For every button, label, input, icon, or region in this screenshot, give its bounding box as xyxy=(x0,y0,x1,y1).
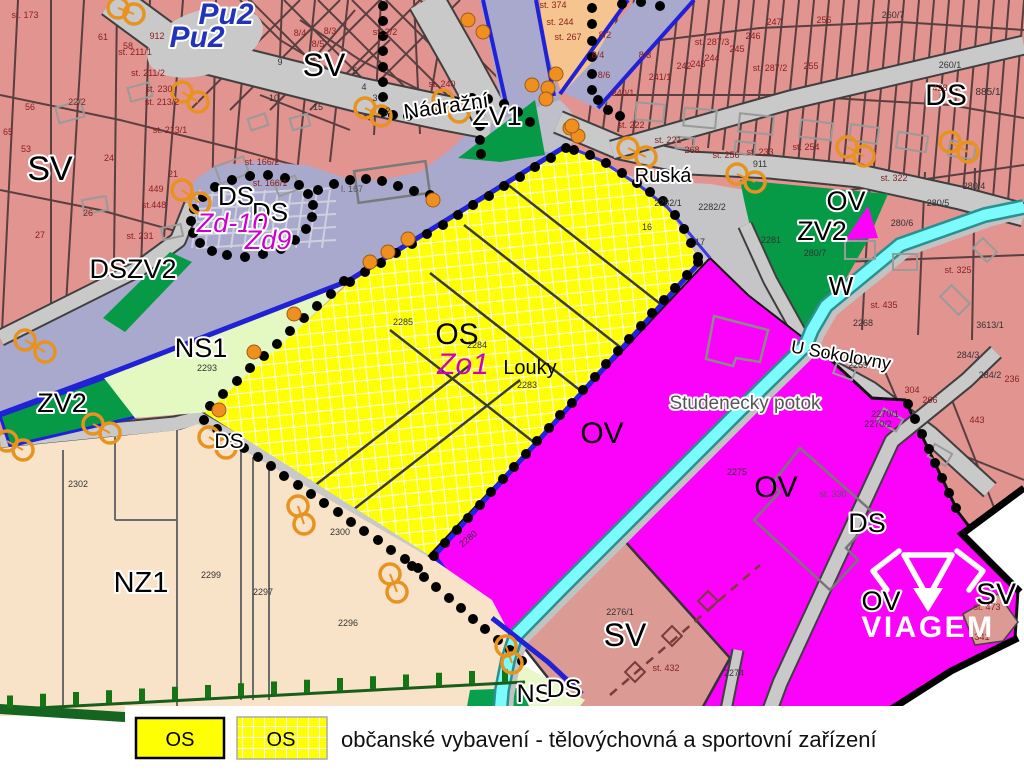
svg-text:8/2: 8/2 xyxy=(599,30,612,40)
svg-text:56: 56 xyxy=(25,102,35,112)
svg-text:21: 21 xyxy=(168,169,178,179)
svg-text:15: 15 xyxy=(313,102,323,112)
svg-text:st. 2/2: st. 2/2 xyxy=(373,27,398,37)
svg-text:st. 211/1: st. 211/1 xyxy=(118,47,152,57)
svg-text:304: 304 xyxy=(904,385,919,395)
svg-text:Zd9: Zd9 xyxy=(244,225,292,255)
svg-text:2299: 2299 xyxy=(201,570,221,580)
svg-text:2: 2 xyxy=(385,106,390,116)
svg-text:247: 247 xyxy=(766,17,781,27)
svg-text:243: 243 xyxy=(690,59,705,69)
svg-text:4: 4 xyxy=(361,82,366,92)
svg-text:65: 65 xyxy=(3,127,13,137)
svg-text:2270/1: 2270/1 xyxy=(871,409,899,419)
svg-text:242: 242 xyxy=(676,61,691,71)
svg-text:OV: OV xyxy=(580,417,623,450)
svg-text:8/3: 8/3 xyxy=(324,26,337,36)
svg-text:246: 246 xyxy=(745,31,760,41)
svg-text:2269: 2269 xyxy=(848,360,868,370)
svg-text:24: 24 xyxy=(104,153,114,163)
svg-text:26: 26 xyxy=(83,208,93,218)
svg-text:OV: OV xyxy=(754,471,797,504)
svg-text:l. 167: l. 167 xyxy=(341,184,363,194)
svg-text:443: 443 xyxy=(969,415,984,425)
svg-text:st. 256: st. 256 xyxy=(712,150,739,160)
svg-text:st.448: st.448 xyxy=(142,200,167,210)
svg-text:st. 230: st. 230 xyxy=(145,84,172,94)
svg-text:DSZV2: DSZV2 xyxy=(89,254,176,284)
svg-text:284/2: 284/2 xyxy=(979,370,1002,380)
svg-text:241/1: 241/1 xyxy=(649,72,672,82)
svg-text:911: 911 xyxy=(753,159,767,169)
svg-text:2282/2: 2282/2 xyxy=(698,202,726,212)
svg-text:280/7: 280/7 xyxy=(804,248,827,258)
svg-text:61: 61 xyxy=(98,32,108,42)
svg-text:DS: DS xyxy=(848,508,886,538)
svg-text:280/5: 280/5 xyxy=(927,198,950,208)
svg-text:st. 211/2: st. 211/2 xyxy=(131,68,165,78)
svg-text:9: 9 xyxy=(277,57,282,67)
svg-text:st. 287/2: st. 287/2 xyxy=(753,63,788,73)
svg-text:260/7: 260/7 xyxy=(882,10,905,20)
svg-text:284/3: 284/3 xyxy=(957,350,980,360)
svg-text:2276/1: 2276/1 xyxy=(606,607,634,617)
svg-text:2274: 2274 xyxy=(724,668,744,678)
svg-text:280/6: 280/6 xyxy=(891,218,914,228)
svg-text:st. 240: st. 240 xyxy=(428,79,455,89)
svg-text:5: 5 xyxy=(352,66,357,76)
svg-text:st. 435: st. 435 xyxy=(870,300,897,310)
svg-text:st. 325: st. 325 xyxy=(944,265,971,275)
svg-text:Louky: Louky xyxy=(503,357,556,379)
svg-text:st. 330: st. 330 xyxy=(819,489,846,499)
svg-text:260/1: 260/1 xyxy=(939,60,962,70)
svg-text:SV: SV xyxy=(27,150,73,188)
svg-text:ZV2: ZV2 xyxy=(797,216,847,246)
svg-text:občanské vybavení - tělovýchov: občanské vybavení - tělovýchovná a sport… xyxy=(341,727,877,752)
svg-text:2284: 2284 xyxy=(467,340,487,350)
svg-text:10: 10 xyxy=(269,93,279,103)
svg-text:240/1: 240/1 xyxy=(612,88,635,98)
svg-text:W: W xyxy=(829,271,854,301)
svg-text:st. 267: st. 267 xyxy=(554,32,581,42)
svg-text:2281: 2281 xyxy=(761,235,781,245)
svg-text:8/4: 8/4 xyxy=(294,28,307,38)
svg-text:DS: DS xyxy=(218,181,254,211)
svg-text:st. 231: st. 231 xyxy=(126,231,153,241)
svg-text:OS: OS xyxy=(166,729,195,751)
svg-text:2275: 2275 xyxy=(727,467,747,477)
svg-text:885/1: 885/1 xyxy=(975,87,1000,98)
svg-text:SV: SV xyxy=(604,617,647,653)
svg-text:DS: DS xyxy=(547,675,582,703)
svg-text:8/4: 8/4 xyxy=(592,50,605,60)
svg-text:OV: OV xyxy=(826,186,865,216)
svg-text:912: 912 xyxy=(149,31,164,41)
svg-text:256: 256 xyxy=(816,15,831,25)
svg-text:266: 266 xyxy=(922,395,937,405)
svg-text:280/4: 280/4 xyxy=(963,181,986,191)
svg-text:53: 53 xyxy=(21,144,31,154)
svg-text:22/2: 22/2 xyxy=(68,97,86,107)
svg-text:428: 428 xyxy=(932,83,947,93)
svg-text:Studenecky potok: Studenecky potok xyxy=(669,393,821,414)
svg-text:2297: 2297 xyxy=(253,587,273,597)
svg-text:2283: 2283 xyxy=(517,380,537,390)
svg-text:Zo1: Zo1 xyxy=(436,348,489,381)
svg-text:st. 221: st. 221 xyxy=(654,135,681,145)
svg-text:st. 287/3: st. 287/3 xyxy=(695,37,730,47)
svg-text:2302: 2302 xyxy=(68,479,88,489)
svg-text:2300: 2300 xyxy=(330,527,350,537)
svg-text:2282/1: 2282/1 xyxy=(654,198,682,208)
svg-text:8/5: 8/5 xyxy=(312,39,325,49)
svg-text:st. 322: st. 322 xyxy=(880,173,907,183)
svg-text:st. 222: st. 222 xyxy=(617,120,644,130)
svg-text:st. 374: st. 374 xyxy=(539,0,566,10)
svg-text:st. 432: st. 432 xyxy=(652,663,679,673)
svg-text:2268: 2268 xyxy=(853,318,873,328)
svg-text:244: 244 xyxy=(704,53,719,63)
svg-text:27: 27 xyxy=(35,230,45,240)
svg-text:st. 166/1: st. 166/1 xyxy=(253,178,288,188)
svg-text:st. 173: st. 173 xyxy=(11,10,38,20)
svg-text:449: 449 xyxy=(148,184,163,194)
svg-text:SV: SV xyxy=(303,47,346,83)
svg-text:st. 213/1: st. 213/1 xyxy=(153,125,188,135)
svg-text:3613/1: 3613/1 xyxy=(976,320,1004,330)
svg-text:NZ1: NZ1 xyxy=(114,567,169,599)
svg-text:8/6: 8/6 xyxy=(598,70,611,80)
svg-text:st. 233: st. 233 xyxy=(746,147,773,157)
svg-text:2293: 2293 xyxy=(197,363,217,373)
svg-text:st. 254: st. 254 xyxy=(792,142,819,152)
svg-text:2285: 2285 xyxy=(393,317,413,327)
svg-text:245: 245 xyxy=(729,44,744,54)
svg-text:VIAGEM: VIAGEM xyxy=(861,611,994,644)
svg-text:17: 17 xyxy=(695,237,705,247)
svg-text:268: 268 xyxy=(684,145,699,155)
svg-text:ZV2: ZV2 xyxy=(37,388,87,418)
svg-text:255: 255 xyxy=(803,61,818,71)
svg-text:OS: OS xyxy=(267,729,296,751)
svg-text:8/3: 8/3 xyxy=(639,50,652,60)
svg-text:st. 166/2: st. 166/2 xyxy=(245,157,280,167)
svg-text:DS: DS xyxy=(214,430,243,453)
svg-text:st. 244: st. 244 xyxy=(546,17,573,27)
svg-text:236: 236 xyxy=(1004,374,1019,384)
svg-text:NS1: NS1 xyxy=(175,333,228,363)
svg-text:Ruská: Ruská xyxy=(635,165,693,187)
svg-text:2270/2: 2270/2 xyxy=(864,419,892,429)
svg-text:2296: 2296 xyxy=(338,618,358,628)
svg-text:Pu2: Pu2 xyxy=(169,21,224,54)
svg-text:st. 213/2: st. 213/2 xyxy=(145,97,180,107)
svg-text:16: 16 xyxy=(642,222,652,232)
svg-text:3: 3 xyxy=(372,93,377,103)
